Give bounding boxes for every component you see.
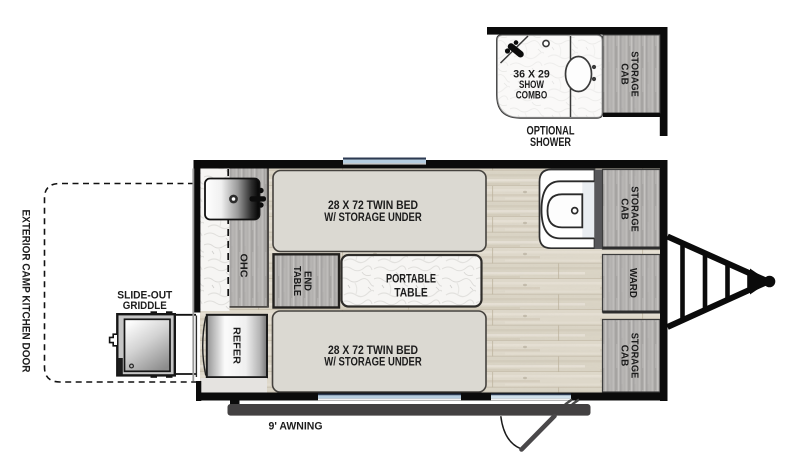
svg-text:9' AWNING: 9' AWNING <box>269 421 323 433</box>
svg-text:W/ STORAGE UNDER: W/ STORAGE UNDER <box>324 212 422 224</box>
svg-text:TABLE: TABLE <box>394 288 428 300</box>
svg-text:28 X 72 TWIN BED: 28 X 72 TWIN BED <box>328 200 418 212</box>
svg-text:OHC: OHC <box>238 254 250 278</box>
svg-text:SHOWER: SHOWER <box>530 137 572 149</box>
svg-text:PORTABLE: PORTABLE <box>386 274 436 286</box>
svg-text:OPTIONAL: OPTIONAL <box>527 126 575 138</box>
svg-text:EXTERIOR CAMP KITCHEN DOOR: EXTERIOR CAMP KITCHEN DOOR <box>20 210 32 373</box>
svg-text:W/ STORAGE UNDER: W/ STORAGE UNDER <box>324 357 422 369</box>
svg-text:28 X 72 TWIN BED: 28 X 72 TWIN BED <box>328 345 418 357</box>
svg-text:COMBO: COMBO <box>516 90 548 102</box>
svg-text:GRIDDLE: GRIDDLE <box>123 300 167 312</box>
svg-text:REFER: REFER <box>231 327 243 364</box>
svg-text:WARD: WARD <box>627 268 638 298</box>
